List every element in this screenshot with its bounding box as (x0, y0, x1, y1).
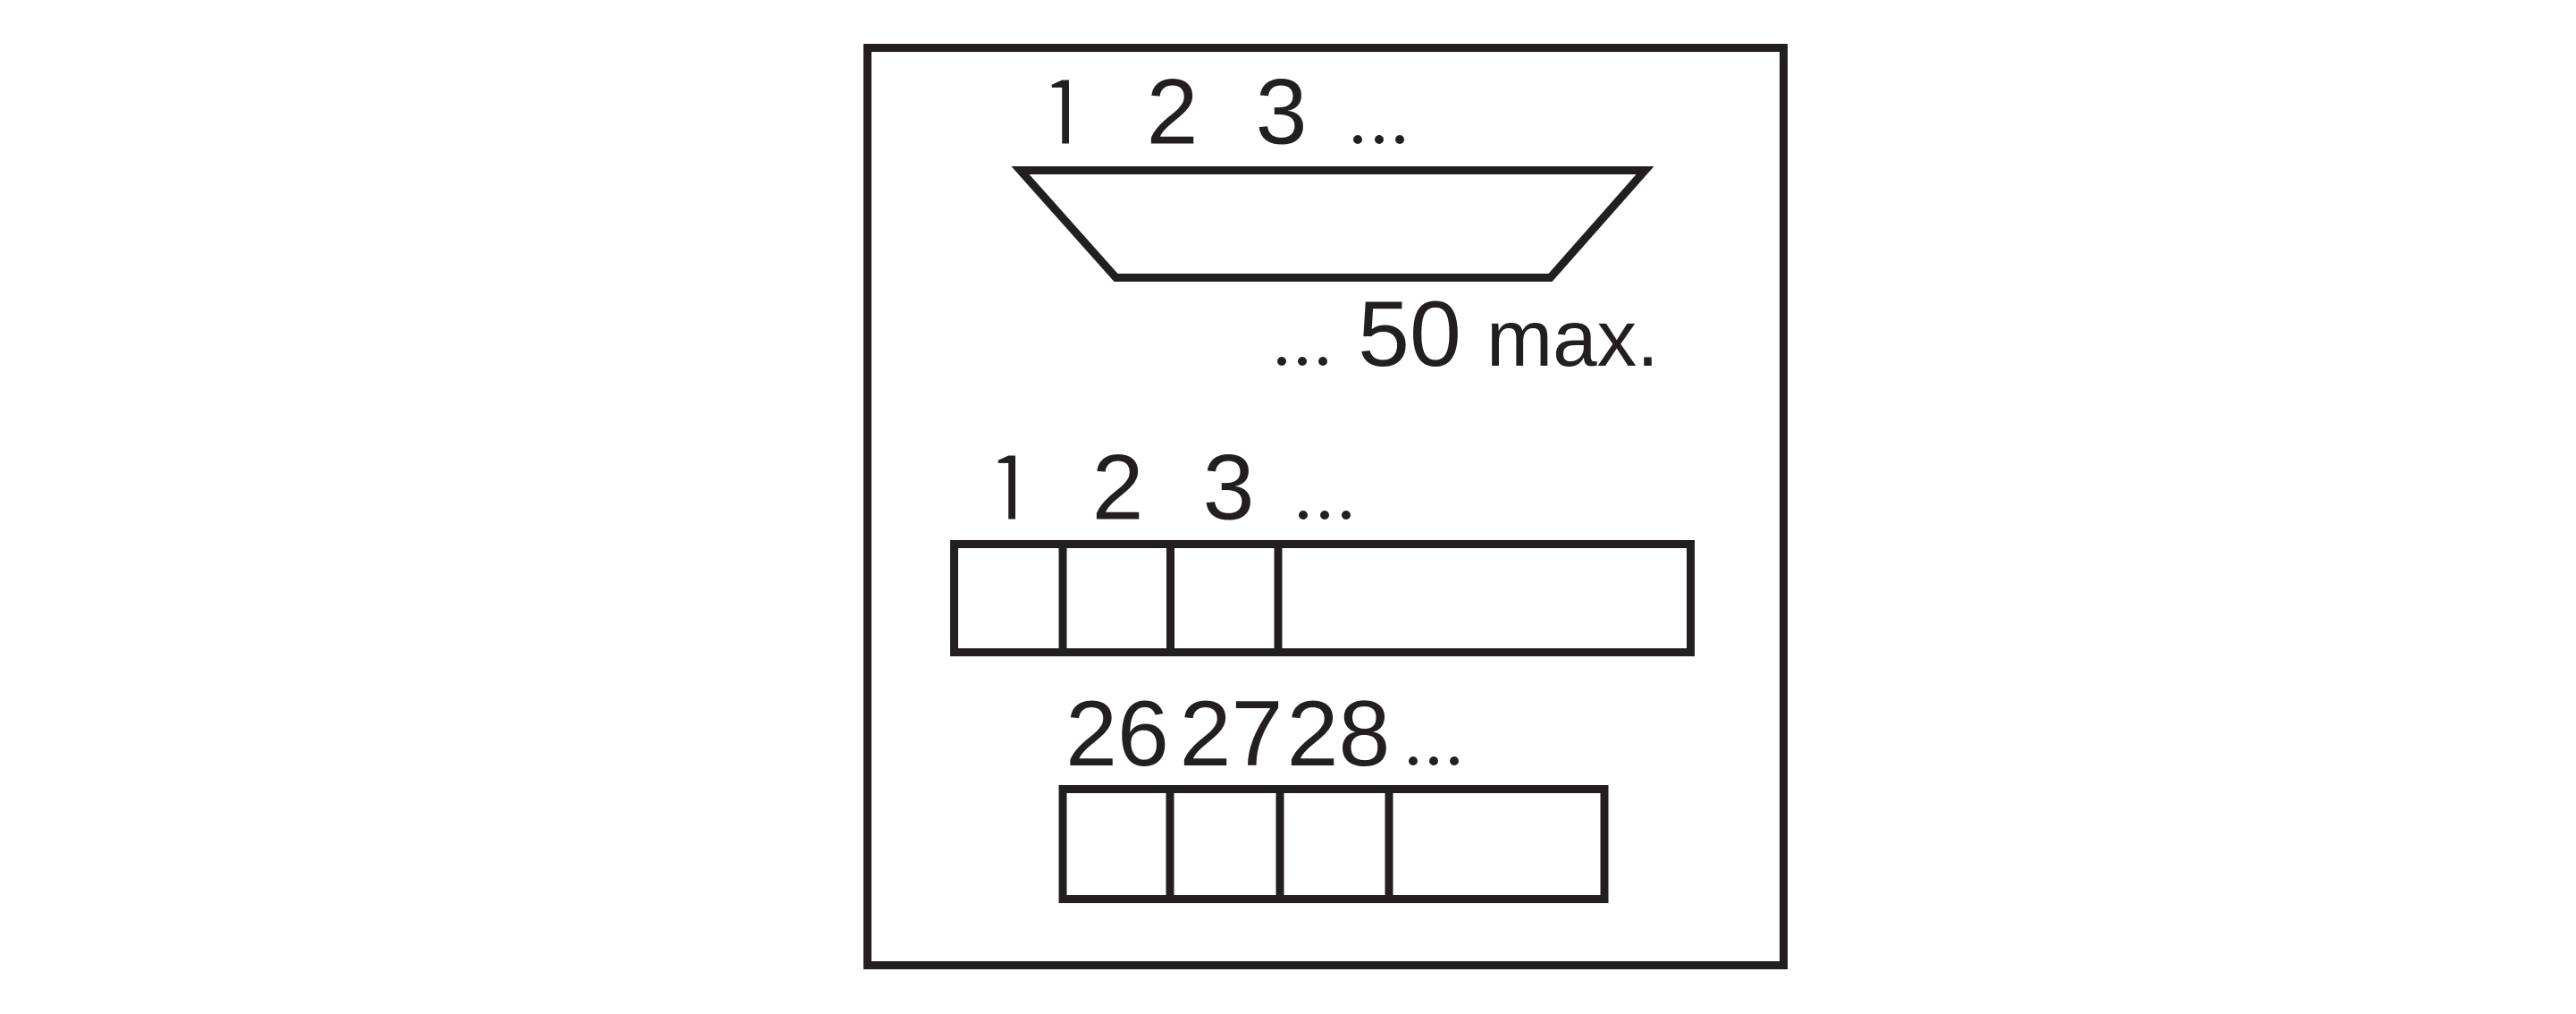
svg-text:3: 3 (1256, 61, 1308, 165)
svg-text:50: 50 (1358, 283, 1461, 386)
svg-text:27: 27 (1180, 682, 1284, 786)
svg-text:2: 2 (1092, 436, 1144, 540)
svg-text:3: 3 (1203, 436, 1255, 540)
svg-text:26: 26 (1065, 682, 1169, 786)
svg-text:28: 28 (1287, 682, 1391, 786)
svg-text:2: 2 (1147, 61, 1199, 165)
svg-text:max.: max. (1486, 293, 1659, 383)
